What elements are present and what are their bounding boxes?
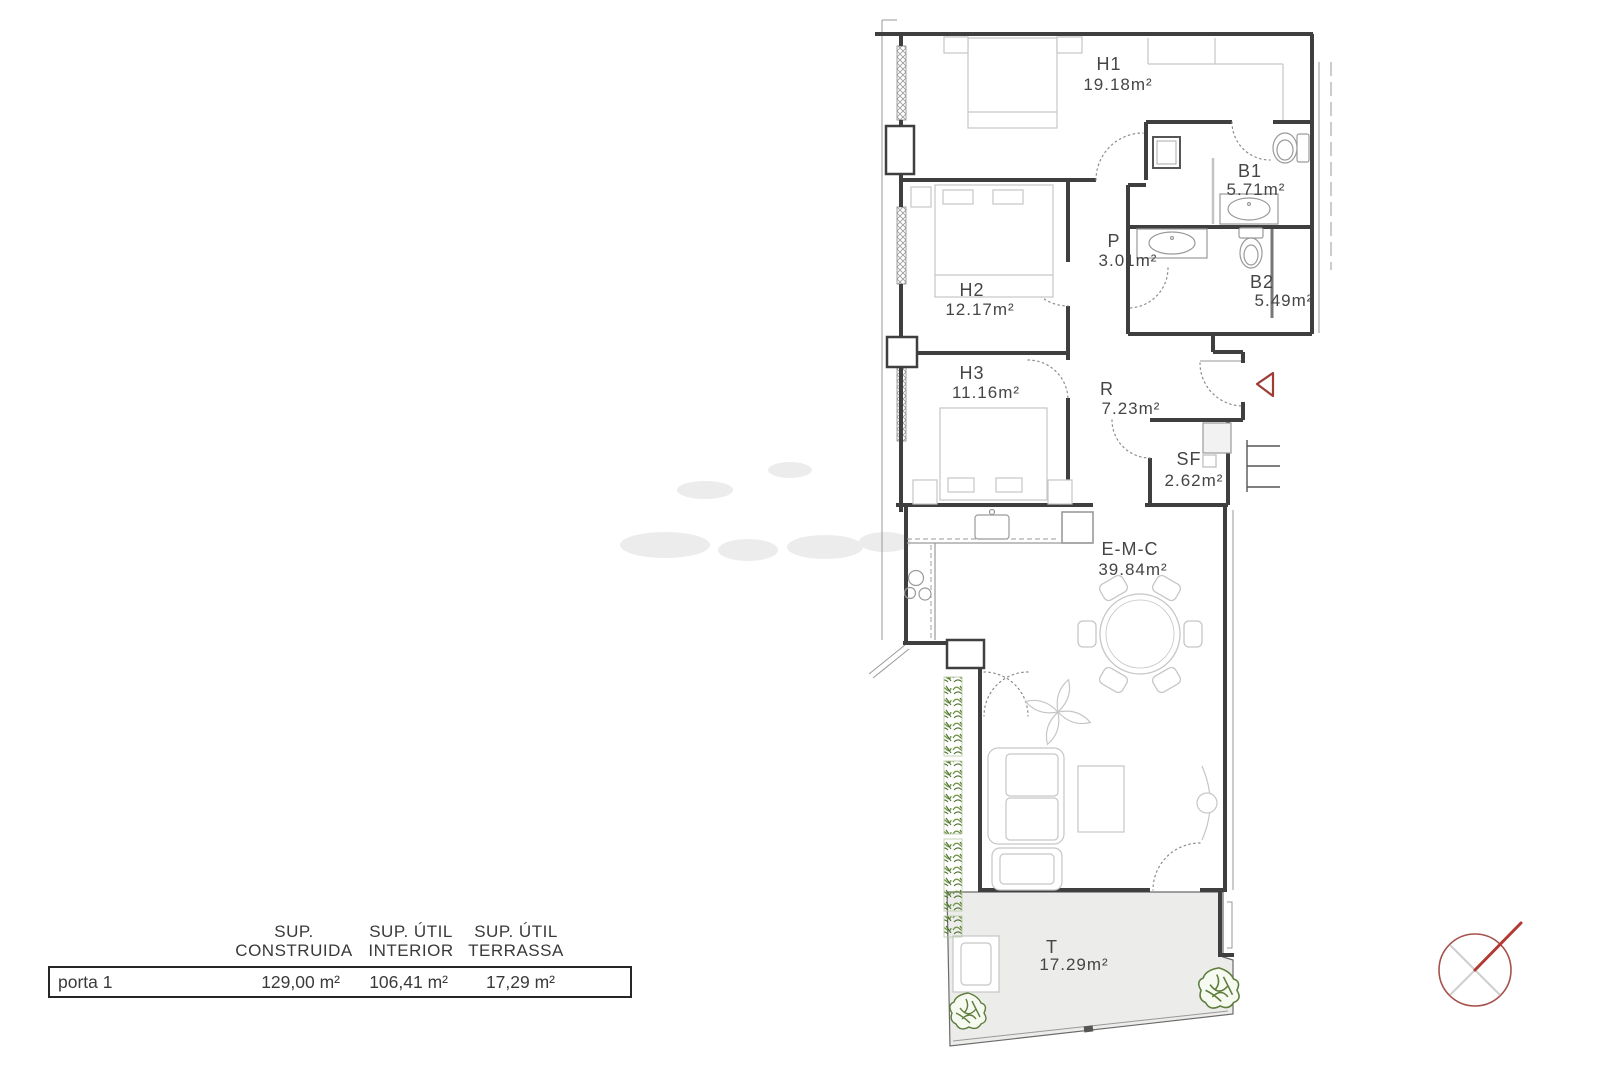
terrace-area-value: 17,29 m² [50, 968, 555, 996]
tv-console [1197, 766, 1217, 840]
room-area-b1: 5.71m² [1227, 180, 1286, 199]
room-label-sf: SF [1176, 449, 1201, 469]
hedge [944, 677, 962, 937]
hob-burner [909, 571, 924, 586]
room-label-h2: H2 [959, 280, 984, 300]
room-label-h1: H1 [1096, 54, 1121, 74]
room-area-h3: 11.16m² [952, 383, 1020, 402]
header-line: TERRASSA [454, 941, 578, 960]
header-line: SUP. ÚTIL [454, 922, 578, 941]
room-label-t: T [1046, 937, 1058, 957]
door-arc-h3 [1028, 360, 1068, 400]
room-area-p: 3.01m² [1099, 251, 1158, 270]
room-area-sf: 2.62m² [1165, 471, 1224, 490]
door-arc-entry [1200, 363, 1243, 406]
door-arc-sf [1112, 420, 1150, 458]
room-area-h1: 19.18m² [1083, 75, 1152, 94]
window-h2 [897, 207, 906, 284]
wardrobe-h1 [1148, 38, 1283, 120]
hob-burner [919, 588, 931, 600]
toilet-b2 [1239, 228, 1263, 268]
room-label-b2: B2 [1250, 272, 1274, 292]
door-arc-b2 [1128, 268, 1168, 308]
room-label-p: P [1107, 231, 1120, 251]
column-header-constructed: SUP. CONSTRUIDA [232, 922, 356, 960]
room-label-b1: B1 [1238, 161, 1262, 181]
bed-h1 [944, 37, 1082, 128]
room-area-r: 7.23m² [1102, 399, 1161, 418]
entrance-arrow-icon [1257, 373, 1273, 396]
room-area-b2: 5.49m² [1255, 291, 1314, 310]
header-line: SUP. [232, 922, 356, 941]
door-arc-kitchen-1 [984, 672, 1028, 716]
sofa [988, 748, 1064, 890]
room-label-r: R [1100, 379, 1114, 399]
terrace-doorstop [1084, 1025, 1094, 1032]
room-area-h2: 12.17m² [945, 300, 1014, 319]
door-arc-b1 [1232, 122, 1270, 160]
header-line: CONSTRUIDA [232, 941, 356, 960]
vent-marks [1247, 440, 1280, 492]
dining-set [1078, 574, 1202, 695]
compass-icon [1439, 923, 1521, 1006]
washer-column [1153, 137, 1180, 168]
door-arc-kitchen-2 [984, 672, 1028, 716]
coffee-table [1078, 766, 1124, 832]
column-header-terrace: SUP. ÚTIL TERRASSA [454, 922, 578, 960]
kitchen-counter [905, 510, 1094, 641]
watermark [620, 462, 911, 561]
bed-h3 [913, 408, 1072, 504]
table-row: porta 1 129,00 m² 106,41 m² 17,29 m² [48, 966, 632, 998]
sun-lounger [953, 936, 999, 992]
room-label-h3: H3 [959, 363, 984, 383]
floorplan-drawing: H1 19.18m² B1 5.71m² P 3.01m² H2 12.17m²… [0, 0, 1600, 1066]
toilet-b1 [1273, 133, 1309, 163]
room-label-emc: E-M-C [1102, 539, 1159, 559]
door-arc-terrace [1153, 843, 1200, 890]
floorplan-page: { "plan": { "rooms": [ {"code": "H1", "a… [0, 0, 1600, 1066]
room-area-t: 17.29m² [1039, 955, 1108, 974]
window-h1 [897, 46, 906, 120]
door-arc-h1 [1096, 133, 1143, 180]
room-area-emc: 39.84m² [1098, 560, 1167, 579]
